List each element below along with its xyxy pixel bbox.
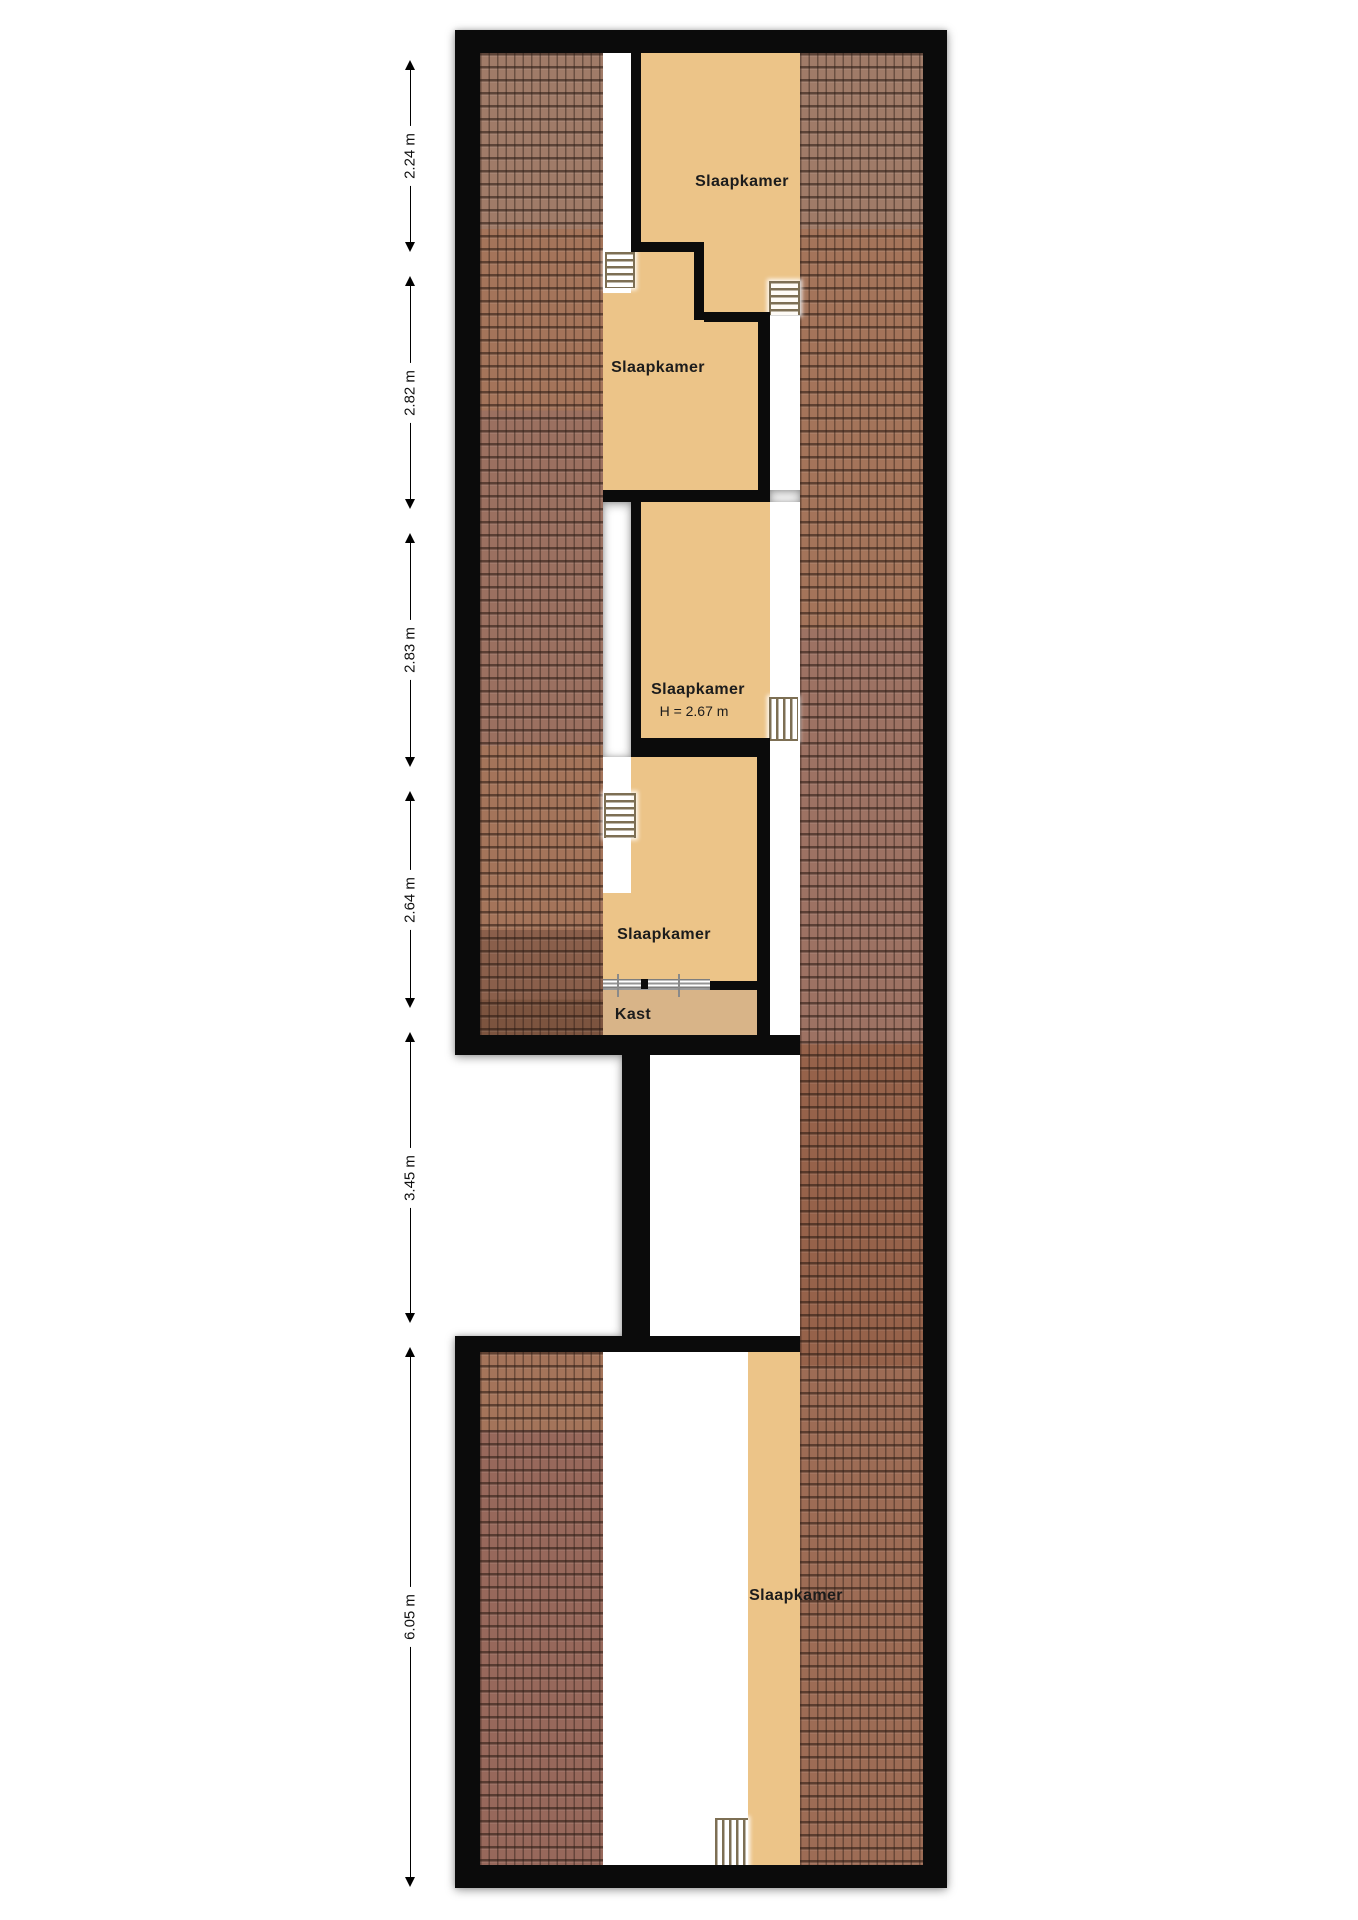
room-label-slaapkamer-3: Slaapkamer: [651, 681, 745, 699]
room-slaapkamer-1: [641, 53, 800, 242]
wall-bedroom1-left: [631, 45, 641, 252]
closet-partition-window: [603, 979, 710, 988]
arrow-down-icon: [405, 757, 415, 767]
dimension-label: 2.83 m: [399, 620, 422, 680]
arrow-down-icon: [405, 242, 415, 252]
floorplan-page: Slaapkamer Slaapkamer Slaapkamer H = 2.6…: [0, 0, 1358, 1920]
wall-bottom-block-top: [455, 1336, 800, 1352]
dimension-2-64-m: 2.64 m: [402, 791, 418, 1008]
room-label-slaapkamer-1: Slaapkamer: [695, 173, 789, 191]
wall-outer-left-lower: [455, 1336, 480, 1888]
dimension-label: 6.05 m: [399, 1587, 422, 1647]
stairs-icon: [769, 281, 800, 315]
dimension-label: 2.64 m: [399, 870, 422, 930]
dimension-6-05-m: 6.05 m: [402, 1347, 418, 1887]
room-label-slaapkamer-5: Slaapkamer: [749, 1587, 843, 1605]
wall-middle-stub: [622, 1035, 650, 1352]
dimension-label: 2.82 m: [399, 363, 422, 423]
arrow-down-icon: [405, 998, 415, 1008]
room-label-slaapkamer-4: Slaapkamer: [617, 926, 711, 944]
partition-post: [641, 979, 648, 989]
stairs-icon: [605, 252, 635, 288]
wall-outer-left-upper: [455, 30, 480, 1055]
room-label-kast: Kast: [615, 1006, 651, 1024]
room-height-note: H = 2.67 m: [660, 703, 729, 719]
arrow-down-icon: [405, 1877, 415, 1887]
dimension-label: 2.24 m: [399, 126, 422, 186]
arrow-down-icon: [405, 499, 415, 509]
void-strip-right-1: [770, 316, 800, 490]
room-slaapkamer-5: [748, 1352, 800, 1865]
roof-left-lower: [480, 1352, 603, 1865]
stairs-icon: [604, 793, 636, 838]
floorplan-drawing: Slaapkamer Slaapkamer Slaapkamer H = 2.6…: [0, 0, 1358, 1920]
void-middle-section: [650, 1055, 800, 1336]
wall-bedroom2-bottom: [603, 490, 770, 502]
wall-zigzag-v1: [694, 242, 704, 320]
stairs-icon: [769, 697, 798, 741]
partition-tick-right: [678, 974, 680, 997]
wall-outer-top: [455, 30, 947, 53]
dimension-2-82-m: 2.82 m: [402, 276, 418, 509]
room-label-slaapkamer-2: Slaapkamer: [611, 359, 705, 377]
wall-bedroom3-left: [631, 502, 641, 738]
roof-left-upper: [480, 53, 603, 1035]
void-strip-right-3: [770, 757, 800, 1035]
wall-bedroom3-bottom: [631, 738, 770, 757]
dimension-2-24-m: 2.24 m: [402, 60, 418, 252]
dimension-2-83-m: 2.83 m: [402, 533, 418, 767]
stairs-icon: [715, 1818, 748, 1868]
arrow-down-icon: [405, 1313, 415, 1323]
wall-outer-bottom: [455, 1865, 947, 1888]
wall-bedroom2-right: [758, 312, 770, 502]
void-bottom-block: [603, 1352, 748, 1865]
dimension-3-45-m: 3.45 m: [402, 1032, 418, 1323]
partition-tick-left: [617, 974, 619, 997]
dimension-label: 3.45 m: [399, 1148, 422, 1208]
wall-outer-right: [923, 30, 947, 1888]
wall-bedroom4-right: [757, 757, 770, 1035]
wall-kast-right-segment: [710, 981, 757, 990]
